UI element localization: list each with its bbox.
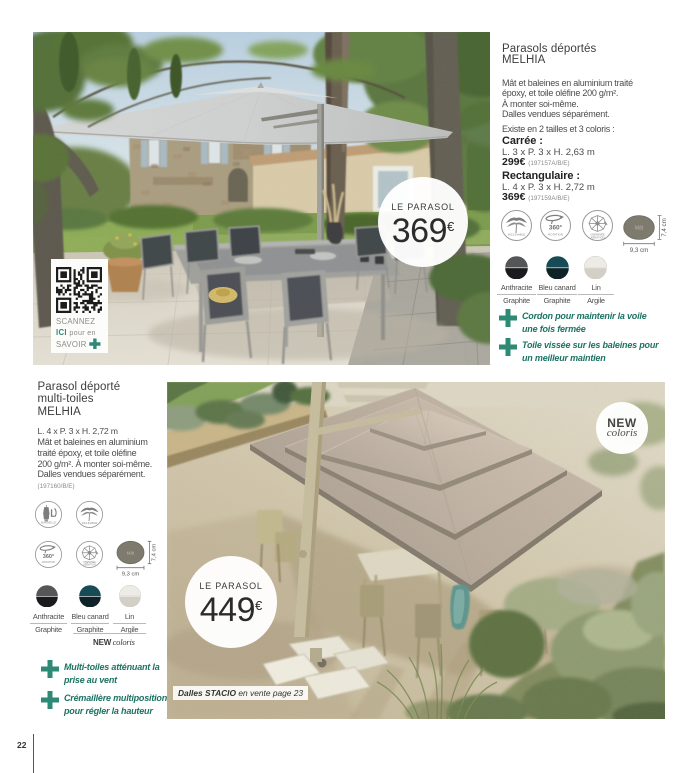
svg-text:360°: 360° [42,553,54,559]
svg-text:AÉRATION: AÉRATION [83,563,95,566]
svg-text:9,3 cm: 9,3 cm [630,247,649,254]
svg-text:INCLINABLE: INCLINABLE [82,521,97,525]
svg-text:Mât: Mât [127,551,135,556]
svg-text:7,4 cm: 7,4 cm [661,218,668,237]
svg-text:ROTATION: ROTATION [41,560,54,564]
svg-text:Mât: Mât [635,226,644,232]
svg-text:MANIVELLE: MANIVELLE [41,521,56,525]
svg-text:AÉRATION: AÉRATION [590,234,604,239]
svg-text:7,4 cm: 7,4 cm [152,544,158,562]
svg-text:360°: 360° [549,224,563,232]
svg-text:ROTATION: ROTATION [548,233,563,237]
svg-text:9,3 cm: 9,3 cm [122,572,140,578]
svg-text:INCLINABLE: INCLINABLE [508,233,526,237]
